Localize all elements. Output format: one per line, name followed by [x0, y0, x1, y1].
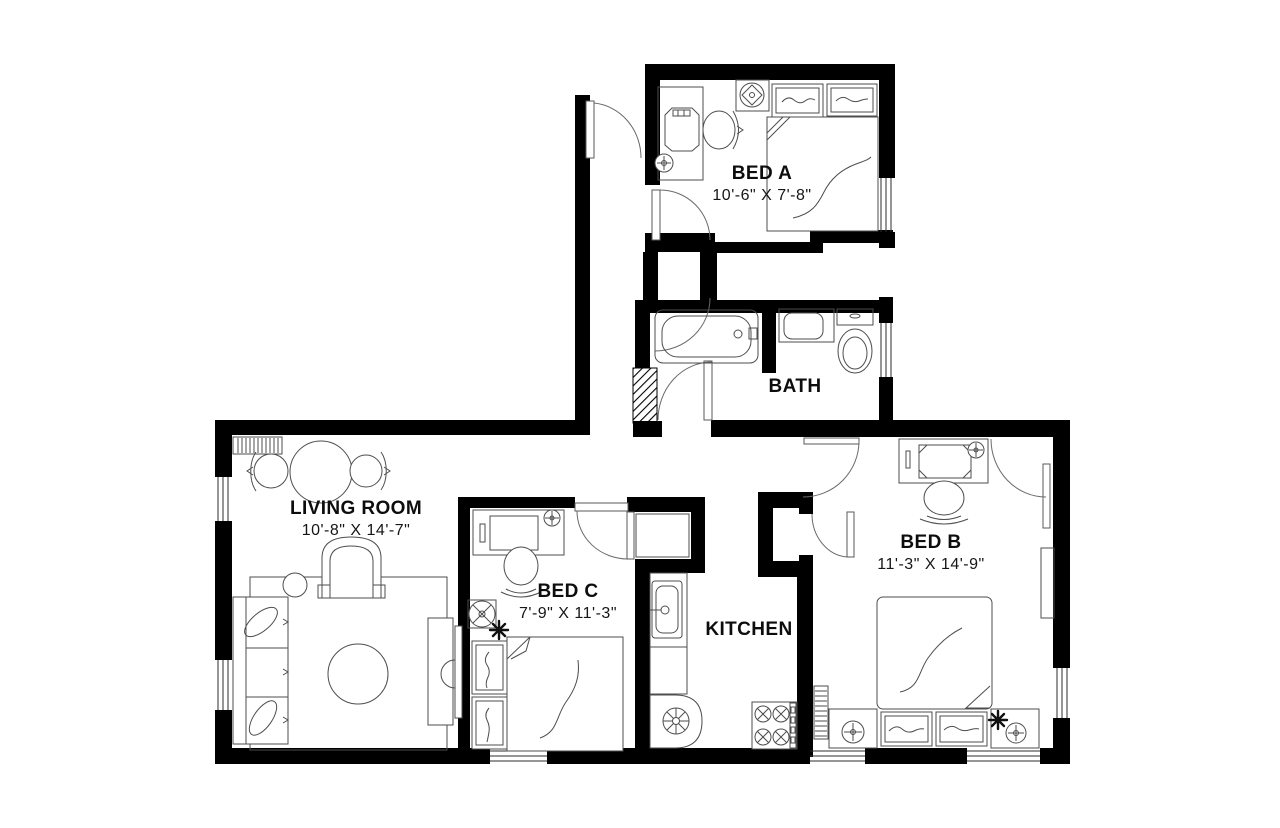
- bath-door: [658, 361, 712, 420]
- bed-c-plant-icon: [490, 621, 508, 639]
- bed-b-desk-chair: [920, 481, 968, 524]
- bed-a-door: [652, 190, 710, 240]
- bed-b-bed: [877, 597, 992, 746]
- bed-b-east-door: [991, 439, 1050, 528]
- stove: [752, 702, 797, 749]
- room-name-bed-b: BED B: [877, 532, 984, 554]
- window-living-room-west-upper: [218, 477, 228, 521]
- floor-plan-drawing: [0, 0, 1280, 828]
- furniture-bed-b: [814, 439, 1054, 748]
- bed-b-wardrobe: [1041, 548, 1054, 618]
- toilet: [837, 309, 873, 373]
- bed-a-phone-icon: [655, 154, 673, 172]
- dining-chair-right: [350, 452, 390, 490]
- bed-b-radiator: [814, 686, 828, 739]
- room-dimensions-bed-b: 11'-3" X 14'-9": [877, 556, 984, 574]
- kitchen-sink: [650, 581, 682, 638]
- living-room-radiator: [233, 437, 282, 454]
- refrigerator: [650, 695, 702, 748]
- bed-c-bed: [472, 637, 623, 751]
- room-name-kitchen: KITCHEN: [705, 619, 792, 641]
- window-bed-a-east: [881, 178, 891, 232]
- bed-c-door: [575, 503, 628, 559]
- floor-plan: BED A 10'-6" X 7'-8" BATH LIVING ROOM 10…: [0, 0, 1280, 828]
- armchair: [318, 537, 385, 598]
- window-living-room-west-lower: [218, 660, 228, 710]
- furniture-living-room: [233, 437, 462, 750]
- bed-b-entry-door: [803, 438, 859, 497]
- room-name-bath: BATH: [769, 376, 822, 398]
- furniture-kitchen: [650, 573, 797, 749]
- bed-c-ceiling-fan-icon: [468, 600, 496, 628]
- room-label-kitchen: KITCHEN: [705, 619, 792, 641]
- room-name-living-room: LIVING ROOM: [290, 498, 422, 520]
- room-dimensions-bed-a: 10'-6" X 7'-8": [712, 187, 811, 205]
- room-name-bed-a: BED A: [712, 163, 811, 185]
- bed-b-closet-door: [812, 512, 854, 557]
- room-label-bath: BATH: [769, 376, 822, 398]
- window-bed-c-south: [490, 751, 547, 761]
- room-label-bed-a: BED A 10'-6" X 7'-8": [712, 163, 811, 205]
- bed-b-nightstand-left: [829, 709, 877, 748]
- dining-chair-left: [247, 452, 288, 491]
- dining-table: [290, 441, 352, 503]
- room-label-bed-c: BED C 7'-9" X 11'-3": [519, 581, 617, 623]
- tv-console: [428, 618, 462, 725]
- entry-door: [586, 101, 641, 158]
- bed-c-desk-fan-icon: [544, 510, 560, 526]
- bed-a-ceiling-fan-icon: [736, 80, 769, 111]
- side-table: [283, 573, 307, 597]
- bed-b-desk-fan-icon: [968, 442, 984, 458]
- bed-c-closet-opening: [627, 512, 689, 559]
- furniture-bed-c: [468, 510, 623, 751]
- plumbing-chase-hatched-wall: [633, 368, 657, 423]
- bath-vanity-sink: [779, 309, 834, 342]
- window-bed-b-south-right: [967, 751, 1040, 761]
- window-bed-b-east: [1057, 668, 1067, 718]
- bed-a-desk-chair: [703, 111, 743, 149]
- room-label-living-room: LIVING ROOM 10'-8" X 14'-7": [290, 498, 422, 540]
- room-dimensions-living-room: 10'-8" X 14'-7": [290, 522, 422, 540]
- coffee-table: [328, 644, 388, 704]
- sofa: [233, 597, 288, 744]
- furniture-bed-a: [655, 80, 878, 231]
- bed-a-bed: [767, 84, 878, 231]
- bed-b-plant-icon: [989, 711, 1007, 729]
- room-label-bed-b: BED B 11'-3" X 14'-9": [877, 532, 984, 574]
- room-name-bed-c: BED C: [519, 581, 617, 603]
- room-dimensions-bed-c: 7'-9" X 11'-3": [519, 605, 617, 623]
- window-bath-east: [881, 323, 891, 377]
- window-bed-b-south-left: [810, 751, 865, 761]
